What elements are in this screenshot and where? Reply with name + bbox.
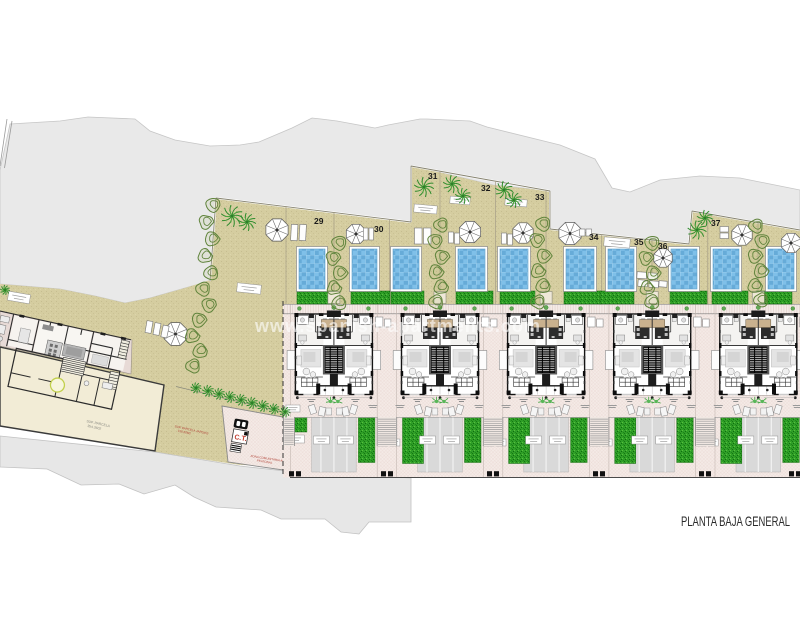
svg-text:31: 31 xyxy=(428,171,438,181)
svg-text:www.spanish-apartments.com: www.spanish-apartments.com xyxy=(254,316,540,336)
svg-text:36: 36 xyxy=(658,241,668,251)
svg-text:34: 34 xyxy=(589,232,599,242)
svg-text:30: 30 xyxy=(374,224,384,234)
svg-text:PLANTA BAJA GENERAL: PLANTA BAJA GENERAL xyxy=(681,513,790,529)
svg-text:37: 37 xyxy=(711,218,721,228)
svg-text:32: 32 xyxy=(481,183,491,193)
svg-text:35: 35 xyxy=(634,237,644,247)
svg-text:33: 33 xyxy=(535,192,545,202)
svg-text:29: 29 xyxy=(314,216,324,226)
